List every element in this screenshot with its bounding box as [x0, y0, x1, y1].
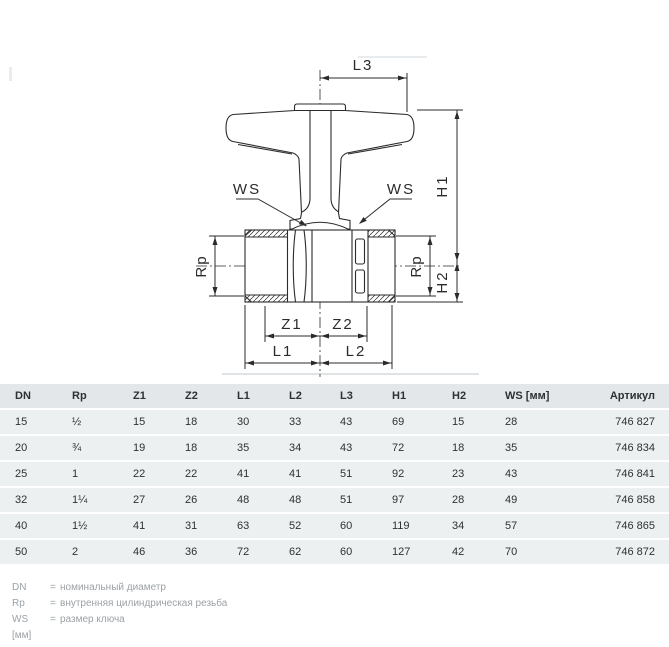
- table-cell: 1¼: [57, 488, 118, 514]
- table-cell: 22: [170, 462, 222, 488]
- article-cell: 746 834: [560, 436, 669, 462]
- dim-label-ws-right: WS: [387, 181, 415, 198]
- table-row: 50 2 46 36 72 62 60 127 42 70 746 872: [0, 540, 669, 566]
- table-cell: 30: [222, 410, 274, 436]
- valve-drawing-area: L3 H1 H2 WS WS Rp Rp Z1 Z2 L1 L2: [0, 0, 669, 384]
- column-header-dn: DN: [0, 384, 57, 410]
- article-cell: 746 865: [560, 514, 669, 540]
- legend-term: WS [мм]: [12, 612, 50, 644]
- table-row: 40 1½ 41 31 63 52 60 119 34 57 746 865: [0, 514, 669, 540]
- dim-label-l2: L2: [346, 343, 367, 360]
- table-cell: 20: [0, 436, 57, 462]
- table-row: 15 ½ 15 18 30 33 43 69 15 28 746 827: [0, 410, 669, 436]
- column-header-l3: L3: [325, 384, 377, 410]
- table-cell: 18: [170, 410, 222, 436]
- column-header-z2: Z2: [170, 384, 222, 410]
- legend-term: DN: [12, 580, 50, 596]
- legend-item: WS [мм] = размер ключа: [12, 612, 669, 644]
- table-cell: 51: [325, 462, 377, 488]
- table-cell: ½: [57, 410, 118, 436]
- dim-label-rp-right: Rp: [408, 254, 425, 277]
- table-cell: 52: [274, 514, 325, 540]
- table-cell: 51: [325, 488, 377, 514]
- table-cell: 19: [118, 436, 170, 462]
- column-header-ws: WS [мм]: [490, 384, 560, 410]
- table-cell: 43: [490, 462, 560, 488]
- table-cell: 41: [274, 462, 325, 488]
- table-cell: 43: [325, 410, 377, 436]
- legend-equals: =: [50, 580, 60, 596]
- table-cell: 18: [437, 436, 490, 462]
- edge-artifact: [9, 67, 12, 81]
- table-cell: 119: [377, 514, 437, 540]
- dim-label-z1: Z1: [281, 316, 303, 333]
- dimensions-table: DN Rp Z1 Z2 L1 L2 L3 H1 H2 WS [мм] Артик…: [0, 384, 669, 566]
- table-cell: 97: [377, 488, 437, 514]
- table-cell: 60: [325, 540, 377, 566]
- table-cell: 60: [325, 514, 377, 540]
- column-header-z1: Z1: [118, 384, 170, 410]
- table-cell: 31: [170, 514, 222, 540]
- legend-definition: размер ключа: [60, 612, 125, 644]
- column-header-h2: H2: [437, 384, 490, 410]
- table-cell: 15: [437, 410, 490, 436]
- table-cell: 23: [437, 462, 490, 488]
- table-cell: 32: [0, 488, 57, 514]
- table-cell: 34: [274, 436, 325, 462]
- table-cell: 27: [118, 488, 170, 514]
- article-cell: 746 872: [560, 540, 669, 566]
- table-cell: 50: [0, 540, 57, 566]
- table-cell: 18: [170, 436, 222, 462]
- table-cell: 2: [57, 540, 118, 566]
- table-cell: 35: [490, 436, 560, 462]
- valve-technical-drawing: L3 H1 H2 WS WS Rp Rp Z1 Z2 L1 L2: [0, 0, 669, 384]
- article-cell: 746 827: [560, 410, 669, 436]
- table-header-row: DN Rp Z1 Z2 L1 L2 L3 H1 H2 WS [мм] Артик…: [0, 384, 669, 410]
- table-cell: 22: [118, 462, 170, 488]
- table-cell: 41: [118, 514, 170, 540]
- table-cell: 34: [437, 514, 490, 540]
- table-cell: 43: [325, 436, 377, 462]
- handle-outline: [226, 104, 414, 229]
- table-cell: 25: [0, 462, 57, 488]
- table-cell: 72: [222, 540, 274, 566]
- table-cell: 48: [274, 488, 325, 514]
- table-row: 32 1¼ 27 26 48 48 51 97 28 49 746 858: [0, 488, 669, 514]
- table-cell: 15: [0, 410, 57, 436]
- table-cell: ¾: [57, 436, 118, 462]
- table-cell: 46: [118, 540, 170, 566]
- legend-equals: =: [50, 596, 60, 612]
- table-cell: 92: [377, 462, 437, 488]
- table-cell: 26: [170, 488, 222, 514]
- table-cell: 127: [377, 540, 437, 566]
- table-cell: 1: [57, 462, 118, 488]
- table-cell: 35: [222, 436, 274, 462]
- dim-label-ws-left: WS: [233, 181, 261, 198]
- column-header-rp: Rp: [57, 384, 118, 410]
- table-cell: 40: [0, 514, 57, 540]
- legend-term: Rp: [12, 596, 50, 612]
- legend-definition: внутренняя цилиндрическая резьба: [60, 596, 227, 612]
- table-cell: 62: [274, 540, 325, 566]
- column-header-l2: L2: [274, 384, 325, 410]
- column-header-article: Артикул: [560, 384, 669, 410]
- table-cell: 49: [490, 488, 560, 514]
- table-cell: 72: [377, 436, 437, 462]
- table-cell: 57: [490, 514, 560, 540]
- table-cell: 63: [222, 514, 274, 540]
- table-row: 25 1 22 22 41 41 51 92 23 43 746 841: [0, 462, 669, 488]
- dim-label-l1: L1: [273, 343, 294, 360]
- table-cell: 1½: [57, 514, 118, 540]
- table-cell: 33: [274, 410, 325, 436]
- dim-label-h1: H1: [434, 174, 451, 197]
- table-cell: 69: [377, 410, 437, 436]
- dim-label-rp-left: Rp: [193, 254, 210, 277]
- dim-label-h2: H2: [434, 270, 451, 293]
- dim-label-z2: Z2: [332, 316, 354, 333]
- table-cell: 28: [437, 488, 490, 514]
- table-cell: 48: [222, 488, 274, 514]
- dim-label-l3: L3: [353, 57, 374, 74]
- table-cell: 41: [222, 462, 274, 488]
- column-header-h1: H1: [377, 384, 437, 410]
- table-cell: 36: [170, 540, 222, 566]
- table-cell: 70: [490, 540, 560, 566]
- column-header-l1: L1: [222, 384, 274, 410]
- article-cell: 746 841: [560, 462, 669, 488]
- legend-item: DN = номинальный диаметр: [12, 580, 669, 596]
- table-cell: 15: [118, 410, 170, 436]
- legend-definition: номинальный диаметр: [60, 580, 166, 596]
- legend: DN = номинальный диаметр Rp = внутренняя…: [12, 580, 669, 644]
- legend-equals: =: [50, 612, 60, 644]
- legend-item: Rp = внутренняя цилиндрическая резьба: [12, 596, 669, 612]
- table-row: 20 ¾ 19 18 35 34 43 72 18 35 746 834: [0, 436, 669, 462]
- article-cell: 746 858: [560, 488, 669, 514]
- table-cell: 28: [490, 410, 560, 436]
- table-cell: 42: [437, 540, 490, 566]
